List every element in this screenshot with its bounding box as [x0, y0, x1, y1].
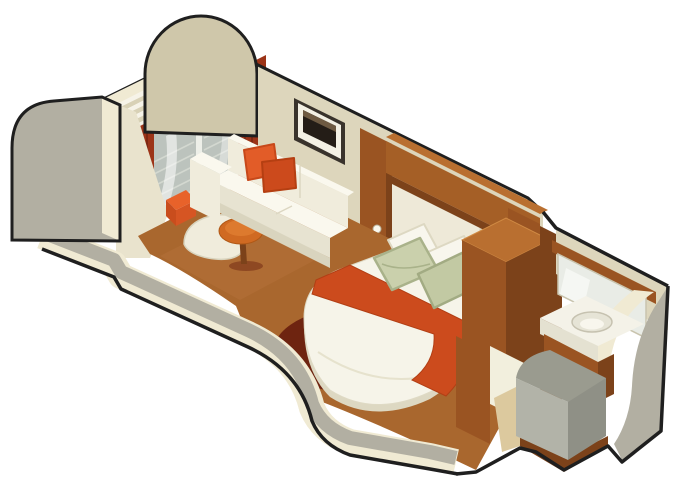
cabin-scene — [0, 0, 680, 486]
left-partition-cut-edge — [102, 97, 120, 241]
partition-wall-face — [145, 16, 257, 136]
balcony-partition-wall — [145, 16, 257, 136]
left-partition-wall — [12, 97, 120, 241]
sofa-pillow-front — [262, 158, 296, 192]
cabin-isometric-rendering — [0, 0, 680, 486]
entry-door-panel — [456, 336, 490, 444]
sink-bowl-inner — [580, 319, 604, 330]
